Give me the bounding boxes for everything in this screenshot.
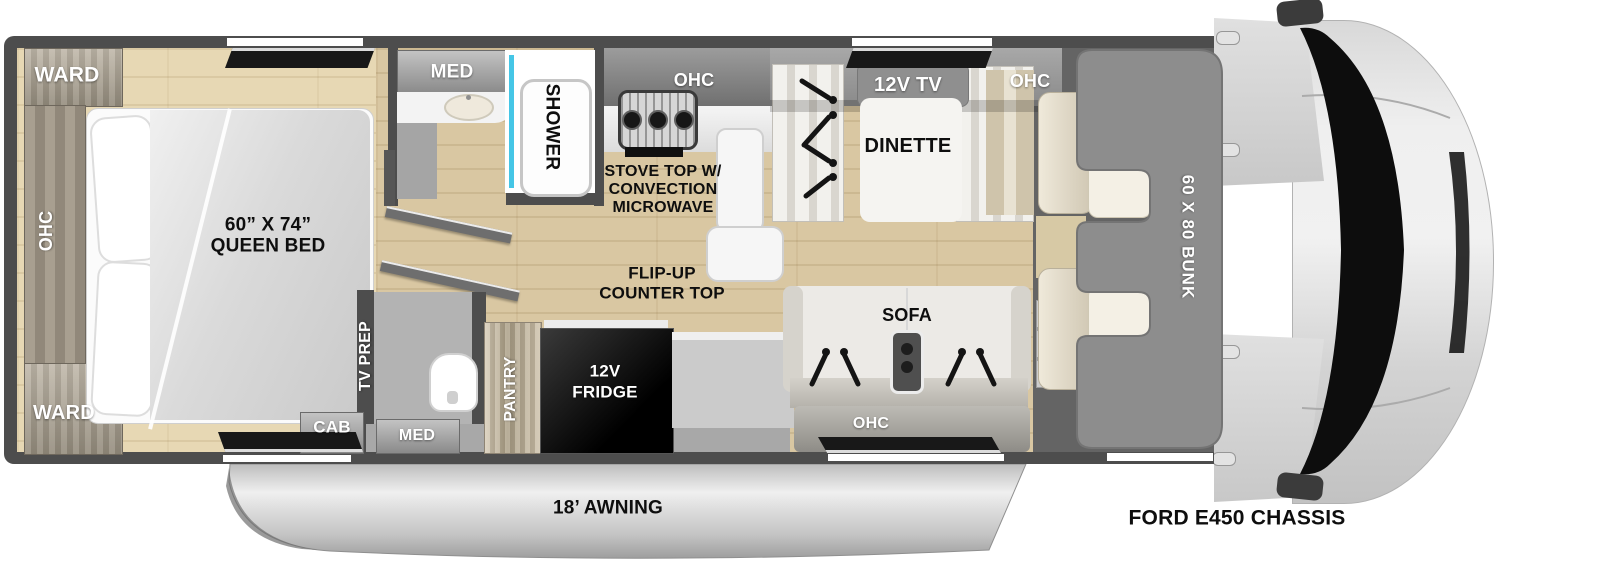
- ward-top-label: WARD: [35, 65, 100, 86]
- door-hinge: [1216, 31, 1240, 45]
- bed-duvet: [150, 110, 370, 420]
- med-top-label: MED: [431, 63, 474, 82]
- bath-sink: [444, 94, 494, 121]
- flip-up-label-line1: FLIP-UP: [628, 265, 696, 282]
- window-marker: [227, 38, 363, 46]
- entry-door-marker: [1107, 453, 1213, 461]
- wall-stub: [384, 150, 395, 206]
- shower-glass: [509, 55, 514, 188]
- kitchen-ohc-label: OHC: [674, 71, 715, 89]
- tv-prep-label: TV PREP: [358, 321, 374, 391]
- sofa-label: SOFA: [882, 306, 932, 324]
- sofa-arm-left: [783, 286, 803, 392]
- tv-12v-label: 12V TV: [874, 75, 942, 95]
- rv-floorplan: WARD OHC WARD 60” X 74” QUEEN BED TV PRE…: [0, 0, 1600, 561]
- window-marker: [852, 38, 992, 46]
- dinette-table: [860, 98, 962, 222]
- stove-vent-strip: [625, 147, 683, 157]
- burner-icon: [674, 110, 694, 130]
- awning-label: 18’ AWNING: [553, 499, 663, 518]
- burner-icon: [622, 110, 642, 130]
- cab-cabinet-label: CAB: [313, 419, 350, 436]
- flip-up-label-line2: COUNTER TOP: [599, 285, 725, 302]
- side-mirror-top: [1276, 0, 1324, 27]
- window-marker: [828, 454, 1004, 461]
- cup-holder-icon: [901, 361, 913, 373]
- dinette-side-cabinet: [986, 70, 1034, 215]
- cup-holder-icon: [901, 343, 913, 355]
- stove-label-line2: CONVECTION: [609, 182, 718, 198]
- fridge-label-line1: 12V: [590, 363, 621, 380]
- sofa-window: [818, 437, 1001, 453]
- dinette-ohc-label: OHC: [1010, 72, 1051, 90]
- dinette-window: [846, 48, 993, 68]
- toilet: [429, 353, 478, 412]
- fridge-label-line2: FRIDGE: [572, 384, 637, 401]
- pantry-label: PANTRY: [503, 356, 519, 421]
- door-hinge: [1212, 452, 1236, 466]
- passenger-seat-cushion: [1088, 286, 1152, 346]
- side-mirror-bottom: [1276, 472, 1324, 502]
- bed-size-label: 60” X 74”: [225, 216, 311, 235]
- sofa-console: [890, 330, 924, 394]
- shower-label: SHOWER: [543, 84, 562, 171]
- stove-label-line1: STOVE TOP W/: [604, 164, 721, 180]
- sofa-arm-right: [1011, 286, 1031, 392]
- dinette-label: DINETTE: [865, 136, 952, 156]
- stove-top-icon: [618, 90, 698, 150]
- stove-label-line3: MICROWAVE: [612, 200, 713, 216]
- door-hinge: [1216, 143, 1240, 157]
- bath-wall-right: [594, 48, 604, 206]
- door-hinge: [1216, 345, 1240, 359]
- burner-icon: [648, 110, 668, 130]
- bedroom-window: [225, 48, 375, 68]
- driver-seat: [1038, 92, 1094, 214]
- dinette-bench-left: [772, 64, 844, 222]
- lower-counter-edge: [672, 332, 794, 340]
- bunk-label: 60 X 80 BUNK: [1180, 175, 1197, 299]
- window-marker: [223, 455, 351, 462]
- driver-seat-cushion: [1088, 158, 1152, 218]
- bed-type-label: QUEEN BED: [211, 237, 326, 256]
- med-bottom-label: MED: [399, 428, 435, 444]
- bath-cabinet-side: [397, 123, 437, 199]
- cab-hood: [1292, 20, 1494, 504]
- chassis-label: FORD E450 CHASSIS: [1129, 508, 1346, 529]
- flip-up-counter: [716, 128, 764, 232]
- passenger-seat: [1038, 268, 1094, 390]
- lower-counter: [672, 340, 794, 428]
- sofa-ohc-label: OHC: [853, 416, 889, 432]
- ohc-left-label: OHC: [37, 211, 55, 252]
- ward-bottom-label: WARD: [33, 403, 95, 423]
- flip-up-counter-base: [706, 226, 784, 282]
